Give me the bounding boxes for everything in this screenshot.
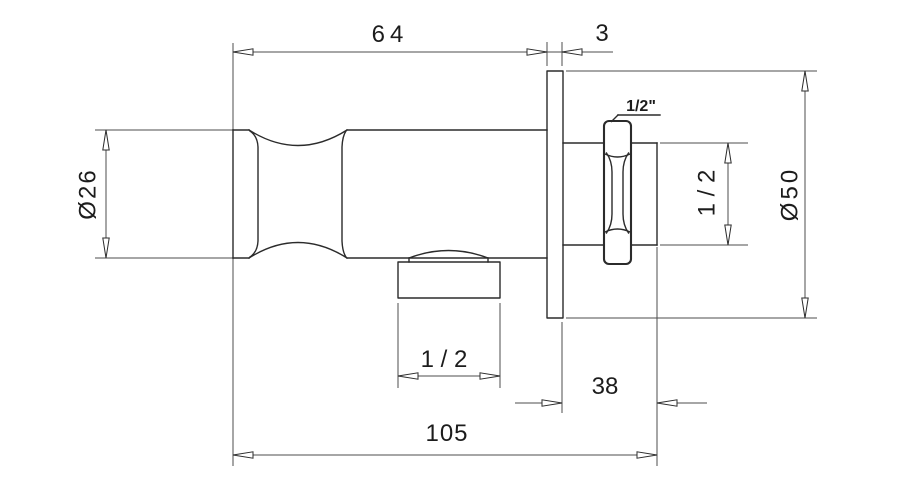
arrow-pipe-top [725,143,731,163]
arrow-dia26-top [103,130,109,150]
label-outlet-thread: 1 / 2 [421,346,468,373]
arrow-105-right [637,452,657,458]
arrow-outlet-left [398,373,418,379]
holder-body [233,130,547,258]
holder-waist-bottom-arc [249,243,347,259]
arrow-38-right [657,400,677,406]
arrow-dia50-bottom [802,298,808,318]
hex-nut [604,115,660,264]
arrow-dia26-bottom [103,238,109,258]
holder-waist-top-arc [249,130,347,146]
label-body-diameter: Ø26 [75,168,102,219]
outlet-collar [398,262,500,298]
holder-waist-right-silhouette [342,131,346,257]
label-flange-diameter: Ø50 [777,167,804,221]
wall-flange [547,71,563,318]
technical-drawing-canvas: 64 3 Ø26 Ø50 1 / 2 1/2" 1 / 2 38 105 [0,0,900,496]
nut-outline [604,121,631,264]
label-body-length: 64 [372,21,409,48]
arrow-105-left [233,452,253,458]
arrow-outlet-right [480,373,500,379]
dimension-lines [95,42,817,466]
arrow-64-left [233,49,253,55]
nut-facet-right [623,153,629,233]
nut-facet-left [607,153,613,233]
label-wall-to-end: 38 [592,373,619,400]
label-overall-length: 105 [425,420,468,447]
label-flange-thickness: 3 [595,20,608,47]
holder-waist-left-silhouette [250,131,258,257]
dimension-labels: 64 3 Ø26 Ø50 1 / 2 1/2" 1 / 2 38 105 [75,20,804,447]
arrow-dia50-top [802,71,808,91]
arrow-3 [562,49,582,55]
drawing-svg: 64 3 Ø26 Ø50 1 / 2 1/2" 1 / 2 38 105 [0,0,900,496]
label-pipe-dim: 1 / 2 [694,170,721,217]
arrow-pipe-bottom [725,225,731,245]
arrow-38-left [542,400,562,406]
dimension-arrows [103,49,808,458]
arrow-64-right [527,49,547,55]
flange-plate [547,71,563,318]
outlet-fillet-arc [409,251,488,259]
label-nut-thread: 1/2" [626,98,656,115]
